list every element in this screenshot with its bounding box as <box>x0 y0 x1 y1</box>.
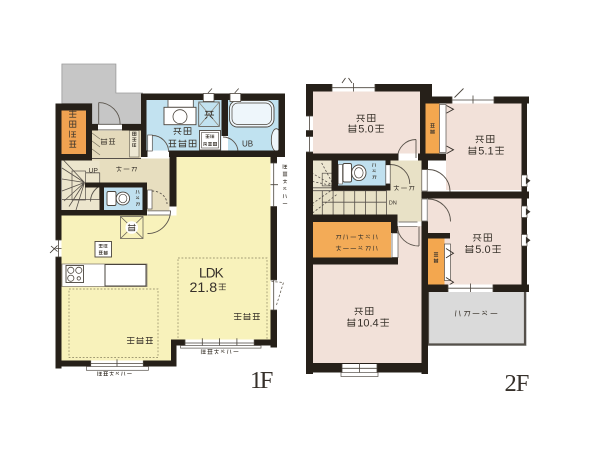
svg-text:LDK: LDK <box>199 265 224 280</box>
svg-text:DN: DN <box>389 200 397 206</box>
svg-text:5.0: 5.0 <box>358 123 373 135</box>
svg-text:2F: 2F <box>505 370 529 397</box>
svg-text:10.4: 10.4 <box>357 317 378 329</box>
svg-text:1F: 1F <box>250 367 273 394</box>
svg-text:5.0: 5.0 <box>475 244 490 256</box>
svg-text:21.8: 21.8 <box>190 280 218 296</box>
svg-text:5.1: 5.1 <box>478 145 493 157</box>
svg-text:UB: UB <box>242 139 253 148</box>
svg-text:UP: UP <box>89 167 99 174</box>
